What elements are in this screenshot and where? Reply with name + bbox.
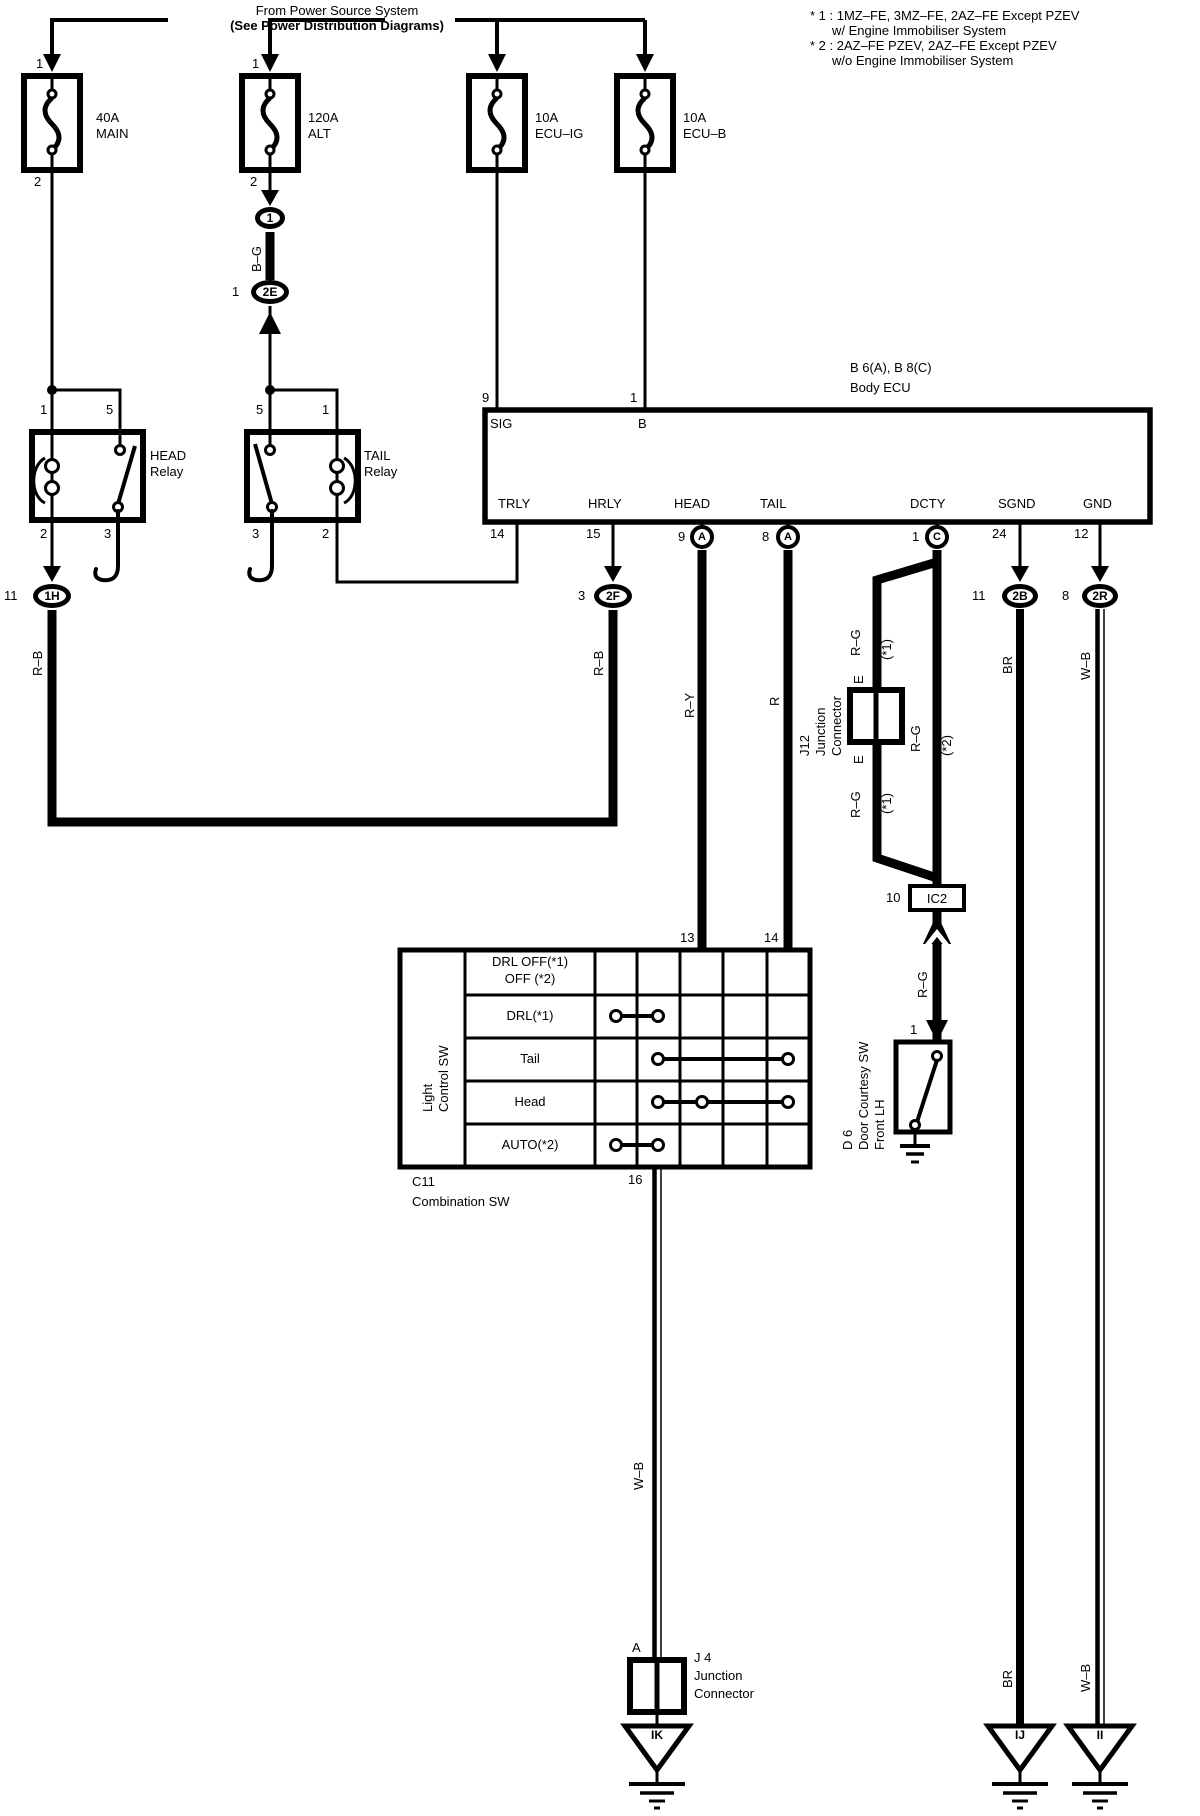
head-relay-name-line1: HEAD bbox=[150, 448, 186, 463]
wire-rb-loop bbox=[52, 610, 613, 822]
door-sw-pin: 1 bbox=[910, 1022, 917, 1037]
ecu-pin-b: B bbox=[638, 416, 647, 431]
fuse-ecu-b-symbol bbox=[617, 76, 673, 410]
ecu-name: Body ECU bbox=[850, 380, 911, 395]
wire-label-rg-top-note: (*1) bbox=[879, 639, 894, 660]
ecu-pin-dcty: DCTY bbox=[910, 496, 945, 511]
ecu-pin-b-num: 1 bbox=[630, 390, 637, 405]
note-1-line1: * 1 : 1MZ–FE, 3MZ–FE, 2AZ–FE Except PZEV bbox=[810, 8, 1079, 23]
tail-relay-pin-5: 5 bbox=[256, 402, 263, 417]
door-courtesy-sw-label: D 6 Door Courtesy SW Front LH bbox=[840, 1042, 888, 1150]
body-ecu-box bbox=[485, 410, 1150, 566]
head-relay-symbol bbox=[32, 385, 143, 580]
combo-sw-side-line2: Control SW bbox=[436, 1046, 452, 1112]
j12-line1: Junction bbox=[813, 696, 829, 756]
connector-1h: 1H bbox=[33, 584, 71, 608]
ground-ij-label: IJ bbox=[1015, 1728, 1025, 1742]
fuse-alt-pin-bottom: 2 bbox=[250, 174, 257, 189]
ecu-pin-tail-num: 8 bbox=[762, 529, 769, 544]
combo-sw-pin14: 14 bbox=[764, 930, 778, 945]
combo-row-0-line2: OFF (*2) bbox=[505, 971, 556, 986]
fuse-alt-pin-top: 1 bbox=[252, 56, 259, 71]
j12-pin-bottom: E bbox=[851, 755, 866, 764]
connector-circle-dcty-c: C bbox=[925, 525, 949, 549]
ecu-pin-dcty-num: 1 bbox=[912, 529, 919, 544]
fuse-main-pin-top: 1 bbox=[36, 56, 43, 71]
ecu-pin-hrly-num: 15 bbox=[586, 526, 600, 541]
wire-label-ry: R–Y bbox=[682, 693, 697, 718]
j12-line2: Connector bbox=[829, 696, 845, 756]
ecu-pin-hrly: HRLY bbox=[588, 496, 622, 511]
fuse-ecu-b-rating: 10A bbox=[683, 110, 706, 125]
connector-ic2-pin: 10 bbox=[886, 890, 900, 905]
wire-label-rg-bottom: R–G bbox=[848, 791, 863, 818]
ecu-pin-head-num: 9 bbox=[678, 529, 685, 544]
ecu-code: B 6(A), B 8(C) bbox=[850, 360, 932, 375]
j12-id: J12 bbox=[797, 696, 813, 756]
tail-relay-pin-1: 1 bbox=[322, 402, 329, 417]
tail-relay-pin-2: 2 bbox=[322, 526, 329, 541]
connector-2e: 2E bbox=[251, 280, 289, 304]
combo-row-3: Head bbox=[514, 1094, 545, 1109]
connector-circle-head-a: A bbox=[690, 525, 714, 549]
connector-1h-pin: 11 bbox=[4, 588, 18, 603]
head-relay-pin-2: 2 bbox=[40, 526, 47, 541]
head-relay-pin-3: 3 bbox=[104, 526, 111, 541]
connector-2b: 2B bbox=[1002, 584, 1038, 608]
wire-label-wb-middle: W–B bbox=[631, 1462, 646, 1490]
wire-label-rg2: R–G bbox=[908, 725, 923, 752]
combo-row-1: DRL(*1) bbox=[507, 1008, 554, 1023]
combo-row-0-line1: DRL OFF(*1) bbox=[492, 954, 568, 969]
note-1-line2: w/ Engine Immobiliser System bbox=[832, 23, 1006, 38]
power-source-subtitle: (See Power Distribution Diagrams) bbox=[230, 18, 444, 33]
ecu-pin-sig: SIG bbox=[490, 416, 512, 431]
head-relay-name-line2: Relay bbox=[150, 464, 183, 479]
ecu-pin-gnd-num: 12 bbox=[1074, 526, 1088, 541]
note-2-line2: w/o Engine Immobiliser System bbox=[832, 53, 1013, 68]
combo-row-2: Tail bbox=[520, 1051, 540, 1066]
ecu-pin-sgnd: SGND bbox=[998, 496, 1036, 511]
combination-sw-table bbox=[400, 950, 810, 1167]
connector-1: 1 bbox=[255, 207, 285, 229]
wire-label-rg-bottom-note: (*1) bbox=[879, 793, 894, 814]
wire-wb-middle bbox=[655, 1167, 662, 1660]
combo-sw-id: C11 bbox=[412, 1174, 435, 1189]
combo-sw-pin16: 16 bbox=[628, 1172, 642, 1187]
wire-label-rb-right: R–B bbox=[591, 651, 606, 676]
connector-2r: 2R bbox=[1082, 584, 1118, 608]
door-sw-name: Door Courtesy SW bbox=[856, 1042, 872, 1150]
fuse-main-pin-bottom: 2 bbox=[34, 174, 41, 189]
power-source-title: From Power Source System bbox=[256, 3, 419, 18]
feed-arrowheads bbox=[43, 54, 654, 72]
wire-label-bg: B–G bbox=[249, 246, 264, 272]
tail-relay-symbol bbox=[247, 390, 517, 582]
wiring-diagram-canvas bbox=[0, 0, 1200, 1816]
j4-pin: A bbox=[632, 1640, 641, 1655]
wire-label-wb-right-top: W–B bbox=[1078, 652, 1093, 680]
ground-ii-label: II bbox=[1097, 1728, 1104, 1742]
connector-2b-pin: 11 bbox=[972, 588, 986, 603]
fuse-ecu-b-name: ECU–B bbox=[683, 126, 726, 141]
wire-label-wb-right-bottom: W–B bbox=[1078, 1664, 1093, 1692]
j4-id: J 4 bbox=[694, 1650, 711, 1665]
connector-ic2: IC2 bbox=[908, 884, 966, 912]
wire-label-rg-ic2: R–G bbox=[915, 971, 930, 998]
fuse-main-rating: 40A bbox=[96, 110, 119, 125]
wire-label-br-top: BR bbox=[1000, 656, 1015, 674]
j4-line2: Connector bbox=[694, 1686, 754, 1701]
j4-line1: Junction bbox=[694, 1668, 742, 1683]
fuse-alt-name: ALT bbox=[308, 126, 331, 141]
ecu-pin-gnd: GND bbox=[1083, 496, 1112, 511]
tail-relay-pin-3: 3 bbox=[252, 526, 259, 541]
ecu-pin-head: HEAD bbox=[674, 496, 710, 511]
door-courtesy-sw-symbol bbox=[896, 1042, 950, 1162]
ecu-pin-sgnd-num: 24 bbox=[992, 526, 1006, 541]
combo-row-4: AUTO(*2) bbox=[502, 1137, 559, 1152]
j4-junction-connector-symbol bbox=[630, 1660, 684, 1726]
fuse-alt-rating: 120A bbox=[308, 110, 338, 125]
ground-ik-label: IK bbox=[651, 1728, 663, 1742]
connector-2f: 2F bbox=[594, 584, 632, 608]
wire-label-br-bottom: BR bbox=[1000, 1670, 1015, 1688]
fuse-ecu-ig-symbol bbox=[469, 76, 525, 410]
right-side-wires bbox=[1020, 609, 1104, 1726]
combo-sw-pin13: 13 bbox=[680, 930, 694, 945]
tail-relay-name-line2: Relay bbox=[364, 464, 397, 479]
j12-junction-connector-label: J12 Junction Connector bbox=[797, 696, 845, 756]
door-sw-loc: Front LH bbox=[872, 1042, 888, 1150]
ecu-pin-sig-num: 9 bbox=[482, 390, 489, 405]
ecu-pin-trly: TRLY bbox=[498, 496, 530, 511]
door-sw-id: D 6 bbox=[840, 1042, 856, 1150]
fuse-ecu-ig-rating: 10A bbox=[535, 110, 558, 125]
connector-arrowheads bbox=[43, 566, 1109, 582]
head-relay-pin-5: 5 bbox=[106, 402, 113, 417]
connector-2f-pin: 3 bbox=[578, 588, 585, 603]
fuse-main-name: MAIN bbox=[96, 126, 129, 141]
head-relay-pin-1: 1 bbox=[40, 402, 47, 417]
wire-label-rg2-note: (*2) bbox=[939, 735, 954, 756]
wire-label-r: R bbox=[767, 697, 782, 706]
wire-label-rg-top: R–G bbox=[848, 629, 863, 656]
note-2-line1: * 2 : 2AZ–FE PZEV, 2AZ–FE Except PZEV bbox=[810, 38, 1057, 53]
tail-relay-name-line1: TAIL bbox=[364, 448, 391, 463]
fuse-ecu-ig-name: ECU–IG bbox=[535, 126, 583, 141]
j12-pin-top: E bbox=[851, 675, 866, 684]
combo-sw-side-line1: Light bbox=[420, 1046, 436, 1112]
ecu-pin-trly-num: 14 bbox=[490, 526, 504, 541]
wiring-diagram-page: From Power Source System (See Power Dist… bbox=[0, 0, 1200, 1816]
combo-sw-side-label: Light Control SW bbox=[420, 1046, 452, 1112]
connector-2e-pin: 1 bbox=[232, 284, 239, 299]
combo-sw-name: Combination SW bbox=[412, 1194, 510, 1209]
ecu-pin-tail: TAIL bbox=[760, 496, 787, 511]
wire-label-rb-left: R–B bbox=[30, 651, 45, 676]
connector-circle-tail-a: A bbox=[776, 525, 800, 549]
connector-2r-pin: 8 bbox=[1062, 588, 1069, 603]
